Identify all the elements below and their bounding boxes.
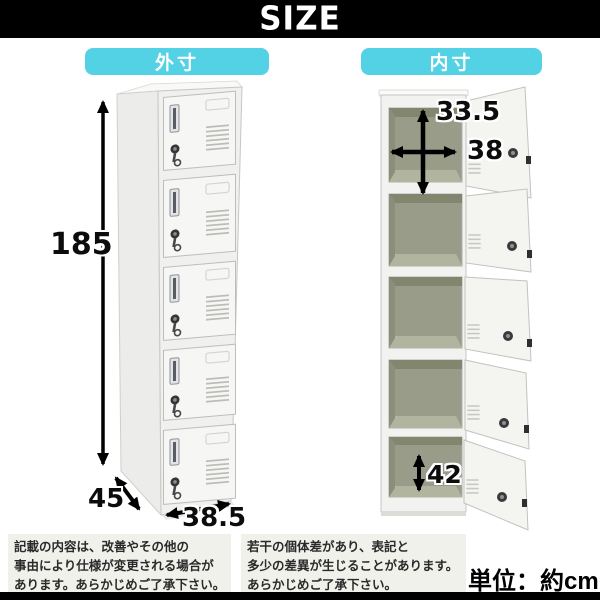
locker-closed-illustration bbox=[117, 81, 242, 520]
outer-height-label: 185 bbox=[50, 230, 113, 260]
disclaimer-note-left: 記載の内容は、改善やその他の 事由により仕様が変更される場合が あります。あらか… bbox=[8, 534, 231, 592]
locker-door bbox=[164, 344, 236, 420]
unit-label: 単位：約cm bbox=[468, 561, 599, 596]
inner-vertical-label: 33.5 bbox=[436, 99, 500, 125]
outer-depth-label: 45 bbox=[88, 486, 124, 512]
footer-bar bbox=[0, 592, 600, 600]
locker-door bbox=[164, 91, 236, 170]
size-infographic: SIZE 外寸 内寸 bbox=[0, 0, 600, 600]
note-line: 多少の差異が生じることがあります。 bbox=[247, 557, 460, 576]
disclaimer-note-right: 若干の個体差があり、表記と 多少の差異が生じることがあります。 あらかじめご了承… bbox=[241, 534, 466, 592]
note-line: 記載の内容は、改善やその他の bbox=[14, 538, 225, 557]
inner-horizontal-label: 38 bbox=[467, 138, 503, 164]
note-line: 若干の個体差があり、表記と bbox=[247, 538, 460, 557]
locker-door bbox=[164, 424, 236, 504]
outer-width-label: 38.5 bbox=[182, 505, 246, 531]
locker-door bbox=[164, 174, 236, 257]
note-line: 事由により仕様が変更される場合が bbox=[14, 557, 225, 576]
inner-bottom-height-label: 42 bbox=[427, 462, 462, 487]
locker-door bbox=[164, 261, 236, 340]
locker-compartments bbox=[389, 108, 462, 497]
